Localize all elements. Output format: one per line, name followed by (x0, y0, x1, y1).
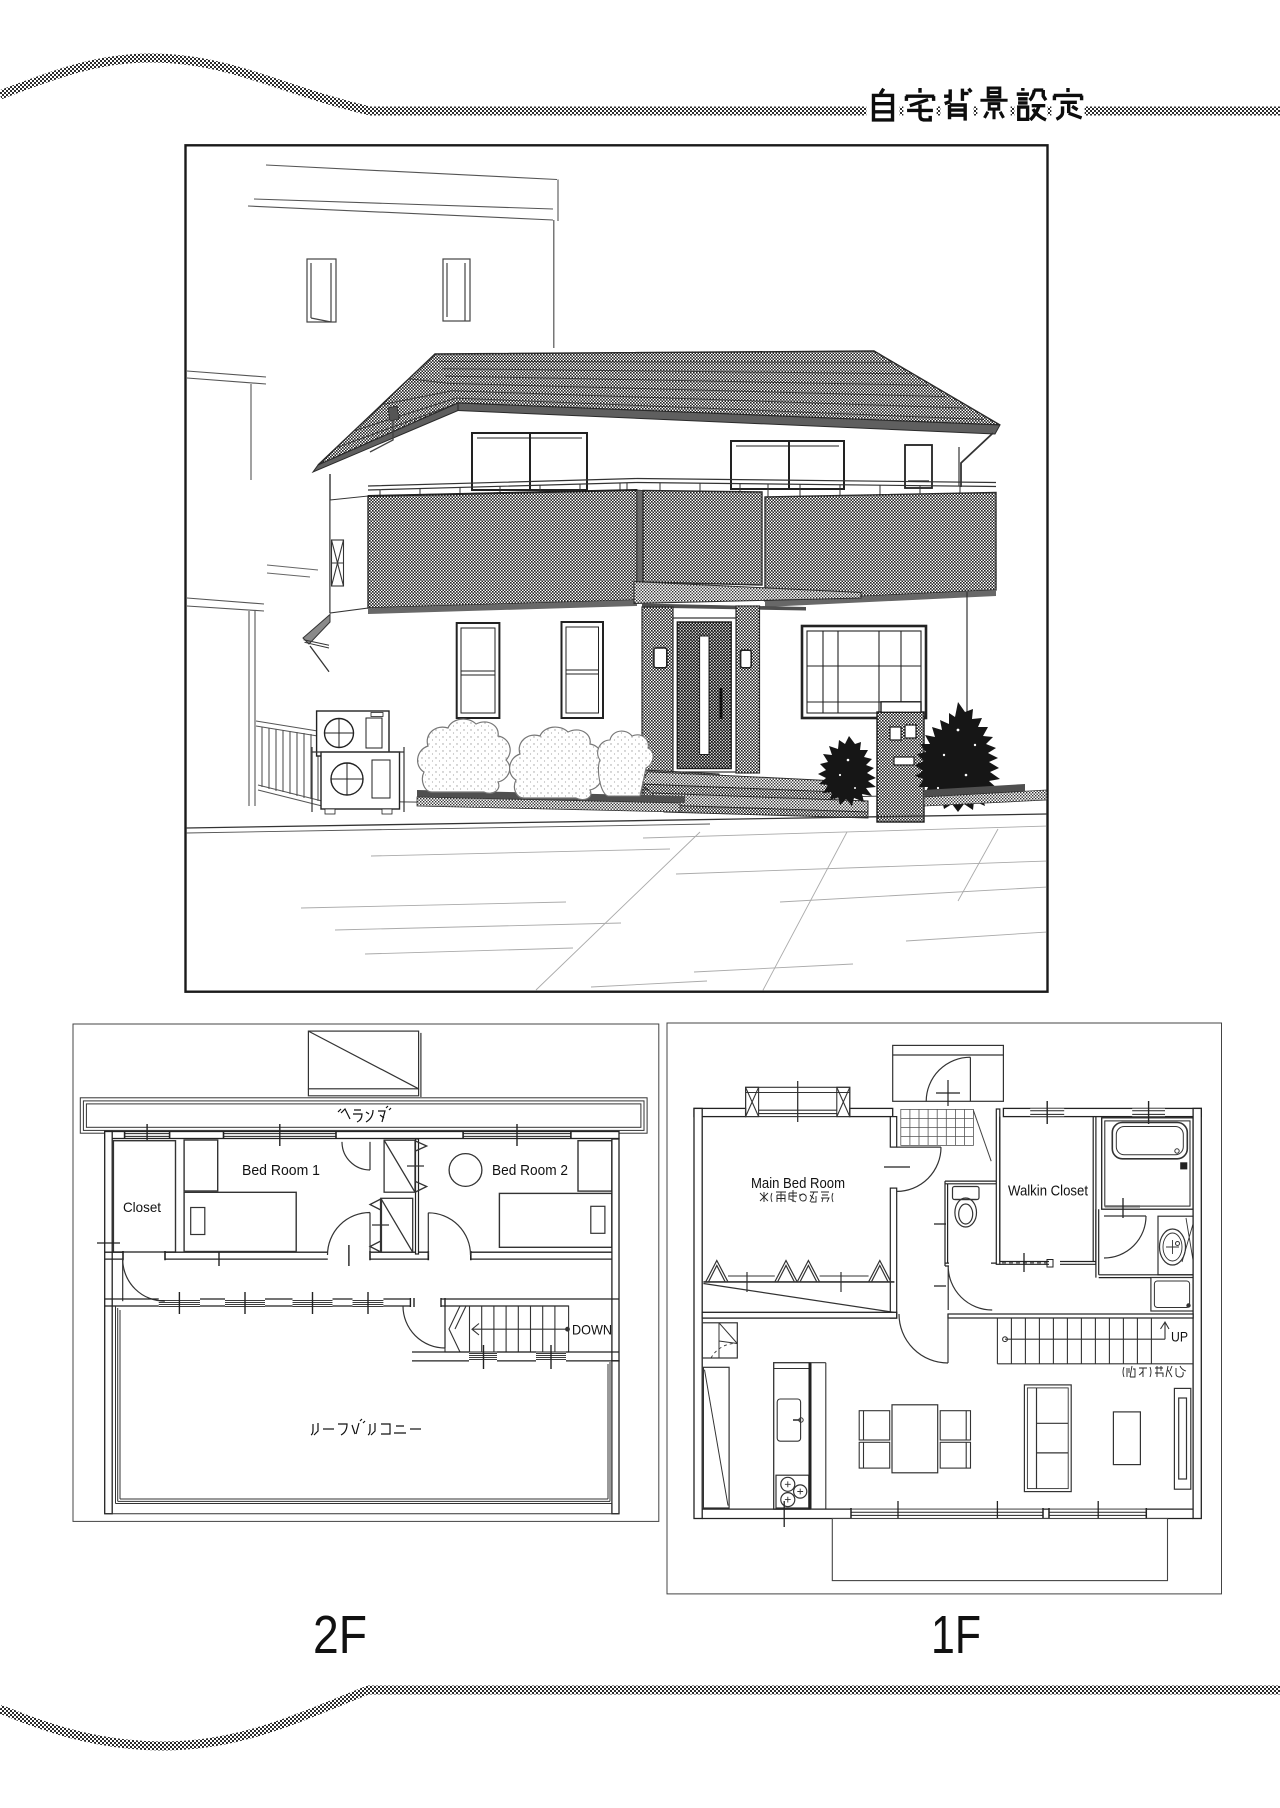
svg-text:UP: UP (1171, 1330, 1188, 1345)
svg-text:DOWN: DOWN (572, 1322, 612, 1338)
svg-text:2F: 2F (313, 1605, 367, 1665)
svg-text:Main Bed Room: Main Bed Room (751, 1175, 845, 1192)
svg-text:Bed Room 2: Bed Room 2 (492, 1162, 568, 1179)
svg-text:Bed Room 1: Bed Room 1 (242, 1162, 320, 1179)
svg-text:Closet: Closet (123, 1199, 161, 1215)
svg-text:Walkin Closet: Walkin Closet (1008, 1183, 1089, 1200)
svg-text:1F: 1F (931, 1605, 981, 1665)
